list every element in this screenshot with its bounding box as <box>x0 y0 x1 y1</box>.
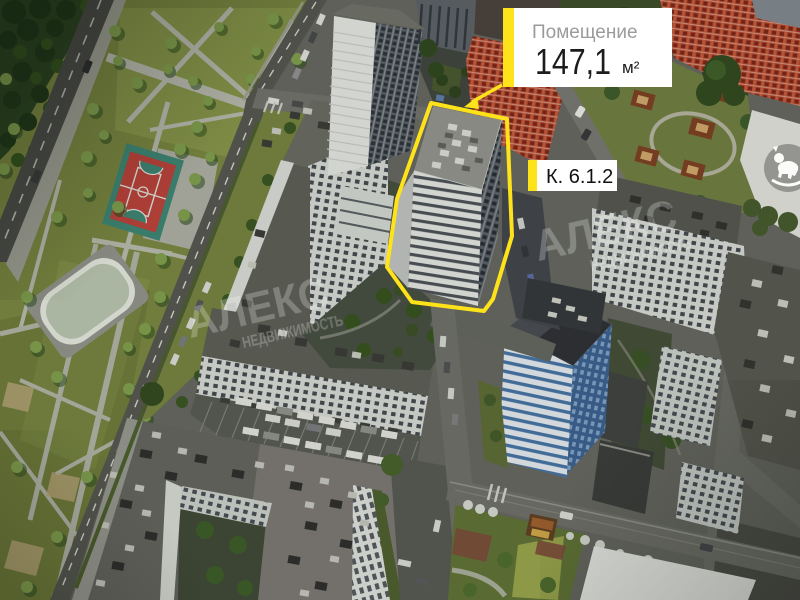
svg-text:м²: м² <box>622 58 640 77</box>
svg-text:К. 6.1.2: К. 6.1.2 <box>546 166 613 188</box>
svg-text:147,1: 147,1 <box>535 41 611 82</box>
svg-text:Помещение: Помещение <box>532 22 638 43</box>
